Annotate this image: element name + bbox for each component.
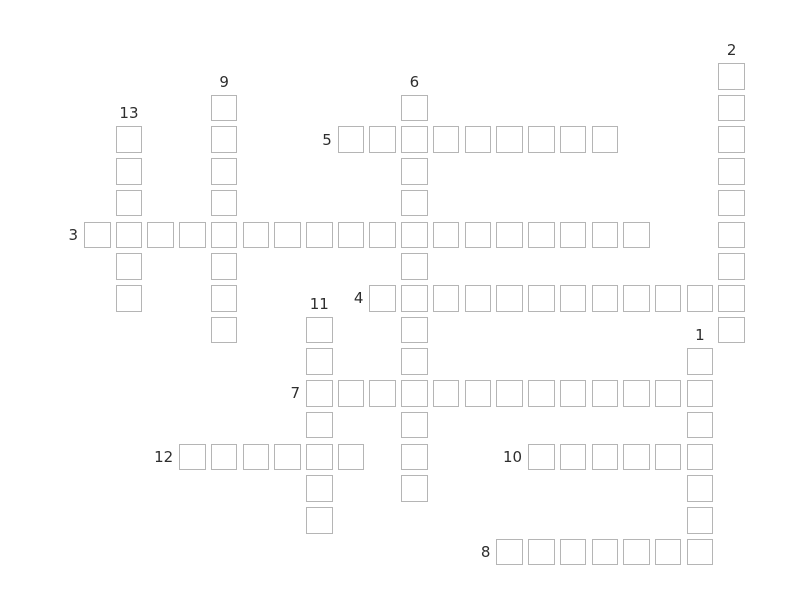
clue-number-12: 12 bbox=[147, 447, 173, 467]
crossword-cell[interactable] bbox=[718, 95, 745, 122]
crossword-cell[interactable] bbox=[465, 285, 492, 312]
crossword-cell[interactable] bbox=[623, 222, 650, 249]
crossword-cell[interactable] bbox=[528, 444, 555, 471]
crossword-cell[interactable] bbox=[211, 95, 238, 122]
crossword-cell[interactable] bbox=[306, 222, 333, 249]
clue-number-6: 6 bbox=[401, 72, 428, 92]
crossword-cell[interactable] bbox=[369, 285, 396, 312]
crossword-cell[interactable] bbox=[211, 190, 238, 217]
crossword-cell[interactable] bbox=[306, 412, 333, 439]
crossword-cell[interactable] bbox=[687, 475, 714, 502]
crossword-cell[interactable] bbox=[401, 348, 428, 375]
crossword-cell[interactable] bbox=[401, 253, 428, 280]
crossword-cell[interactable] bbox=[211, 285, 238, 312]
crossword-cell[interactable] bbox=[433, 285, 460, 312]
crossword-cell[interactable] bbox=[687, 412, 714, 439]
crossword-cell[interactable] bbox=[401, 222, 428, 249]
crossword-cell[interactable] bbox=[369, 222, 396, 249]
crossword-cell[interactable] bbox=[401, 285, 428, 312]
crossword-cell[interactable] bbox=[306, 380, 333, 407]
crossword-cell[interactable] bbox=[433, 222, 460, 249]
crossword-cell[interactable] bbox=[687, 348, 714, 375]
crossword-cell[interactable] bbox=[560, 444, 587, 471]
crossword-cell[interactable] bbox=[306, 507, 333, 534]
crossword-cell[interactable] bbox=[211, 158, 238, 185]
crossword-cell[interactable] bbox=[433, 380, 460, 407]
crossword-cell[interactable] bbox=[687, 380, 714, 407]
crossword-cell[interactable] bbox=[687, 539, 714, 566]
crossword-cell[interactable] bbox=[655, 444, 682, 471]
crossword-cell[interactable] bbox=[592, 222, 619, 249]
crossword-cell[interactable] bbox=[84, 222, 111, 249]
crossword-cell[interactable] bbox=[211, 444, 238, 471]
crossword-cell[interactable] bbox=[338, 444, 365, 471]
crossword-cell[interactable] bbox=[718, 126, 745, 153]
crossword-cell[interactable] bbox=[179, 222, 206, 249]
crossword-cell[interactable] bbox=[528, 285, 555, 312]
crossword-cell[interactable] bbox=[116, 126, 143, 153]
crossword-cell[interactable] bbox=[655, 539, 682, 566]
crossword-cell[interactable] bbox=[116, 222, 143, 249]
crossword-cell[interactable] bbox=[623, 285, 650, 312]
crossword-cell[interactable] bbox=[401, 317, 428, 344]
crossword-cell[interactable] bbox=[338, 126, 365, 153]
crossword-cell[interactable] bbox=[401, 126, 428, 153]
crossword-cell[interactable] bbox=[274, 222, 301, 249]
crossword-cell[interactable] bbox=[528, 126, 555, 153]
clue-number-11: 11 bbox=[306, 294, 333, 314]
crossword-cell[interactable] bbox=[623, 539, 650, 566]
crossword-cell[interactable] bbox=[592, 285, 619, 312]
crossword-cell[interactable] bbox=[306, 317, 333, 344]
crossword-cell[interactable] bbox=[147, 222, 174, 249]
crossword-cell[interactable] bbox=[338, 222, 365, 249]
crossword-cell[interactable] bbox=[211, 317, 238, 344]
crossword-cell[interactable] bbox=[496, 222, 523, 249]
crossword-cell[interactable] bbox=[401, 95, 428, 122]
crossword-cell[interactable] bbox=[211, 222, 238, 249]
crossword-cell[interactable] bbox=[433, 126, 460, 153]
crossword-cell[interactable] bbox=[496, 285, 523, 312]
clue-number-8: 8 bbox=[464, 542, 490, 562]
crossword-cell[interactable] bbox=[116, 253, 143, 280]
crossword-cell[interactable] bbox=[560, 126, 587, 153]
crossword-cell[interactable] bbox=[718, 190, 745, 217]
crossword-cell[interactable] bbox=[306, 444, 333, 471]
crossword-cell[interactable] bbox=[179, 444, 206, 471]
crossword-cell[interactable] bbox=[211, 126, 238, 153]
clue-number-9: 9 bbox=[211, 72, 238, 92]
crossword-cell[interactable] bbox=[496, 539, 523, 566]
clue-number-13: 13 bbox=[116, 103, 143, 123]
crossword-cell[interactable] bbox=[306, 475, 333, 502]
crossword-cell[interactable] bbox=[401, 380, 428, 407]
crossword-cell[interactable] bbox=[718, 253, 745, 280]
clue-number-1: 1 bbox=[687, 325, 714, 345]
crossword-cell[interactable] bbox=[496, 126, 523, 153]
crossword-cell[interactable] bbox=[338, 380, 365, 407]
crossword-cell[interactable] bbox=[718, 222, 745, 249]
crossword-grid: 12345678910111213 bbox=[0, 0, 800, 600]
crossword-cell[interactable] bbox=[718, 158, 745, 185]
crossword-cell[interactable] bbox=[401, 475, 428, 502]
crossword-cell[interactable] bbox=[528, 222, 555, 249]
crossword-cell[interactable] bbox=[687, 507, 714, 534]
crossword-cell[interactable] bbox=[687, 285, 714, 312]
crossword-cell[interactable] bbox=[401, 444, 428, 471]
crossword-cell[interactable] bbox=[465, 380, 492, 407]
clue-number-2: 2 bbox=[718, 40, 745, 60]
crossword-cell[interactable] bbox=[592, 539, 619, 566]
crossword-cell[interactable] bbox=[243, 444, 270, 471]
crossword-cell[interactable] bbox=[369, 126, 396, 153]
crossword-cell[interactable] bbox=[560, 539, 587, 566]
crossword-cell[interactable] bbox=[116, 190, 143, 217]
crossword-cell[interactable] bbox=[528, 539, 555, 566]
crossword-cell[interactable] bbox=[718, 317, 745, 344]
crossword-cell[interactable] bbox=[401, 412, 428, 439]
crossword-cell[interactable] bbox=[623, 380, 650, 407]
crossword-cell[interactable] bbox=[401, 190, 428, 217]
crossword-cell[interactable] bbox=[528, 380, 555, 407]
crossword-cell[interactable] bbox=[496, 380, 523, 407]
clue-number-7: 7 bbox=[274, 383, 300, 403]
crossword-cell[interactable] bbox=[718, 285, 745, 312]
crossword-cell[interactable] bbox=[560, 380, 587, 407]
crossword-cell[interactable] bbox=[465, 126, 492, 153]
crossword-cell[interactable] bbox=[655, 380, 682, 407]
clue-number-5: 5 bbox=[306, 130, 332, 150]
crossword-cell[interactable] bbox=[623, 444, 650, 471]
crossword-cell[interactable] bbox=[369, 380, 396, 407]
clue-number-10: 10 bbox=[496, 447, 522, 467]
crossword-cell[interactable] bbox=[306, 348, 333, 375]
crossword-cell[interactable] bbox=[401, 158, 428, 185]
crossword-cell[interactable] bbox=[116, 158, 143, 185]
clue-number-3: 3 bbox=[52, 225, 78, 245]
crossword-cell[interactable] bbox=[592, 126, 619, 153]
crossword-cell[interactable] bbox=[655, 285, 682, 312]
crossword-cell[interactable] bbox=[592, 380, 619, 407]
crossword-cell[interactable] bbox=[243, 222, 270, 249]
crossword-cell[interactable] bbox=[274, 444, 301, 471]
crossword-cell[interactable] bbox=[560, 222, 587, 249]
crossword-cell[interactable] bbox=[116, 285, 143, 312]
crossword-cell[interactable] bbox=[592, 444, 619, 471]
crossword-cell[interactable] bbox=[718, 63, 745, 90]
crossword-cell[interactable] bbox=[560, 285, 587, 312]
crossword-cell[interactable] bbox=[465, 222, 492, 249]
clue-number-4: 4 bbox=[337, 288, 363, 308]
crossword-cell[interactable] bbox=[687, 444, 714, 471]
crossword-cell[interactable] bbox=[211, 253, 238, 280]
